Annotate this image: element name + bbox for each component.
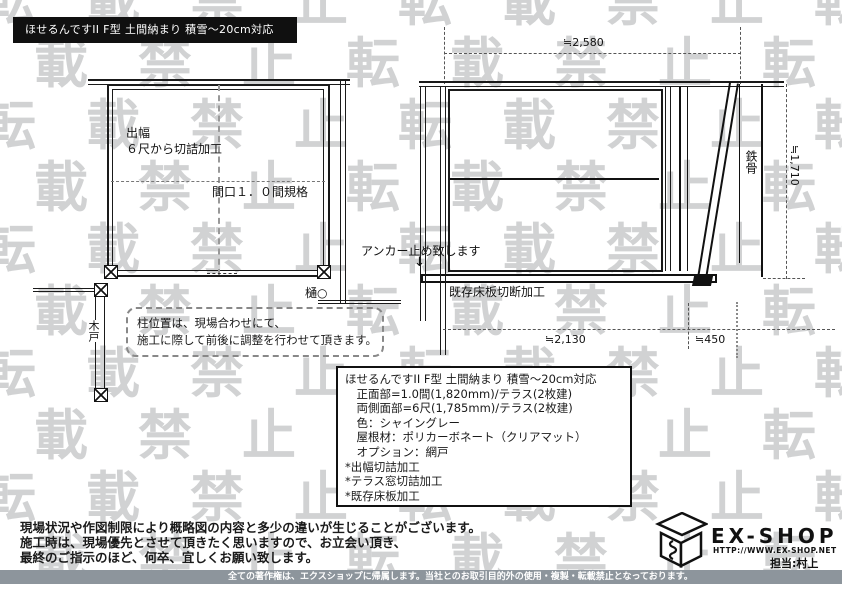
plan-center-dashed-vertical bbox=[218, 85, 220, 275]
dim-top-ext-right bbox=[740, 27, 741, 84]
elev-wall-inner bbox=[440, 86, 446, 355]
plan-bottom-center-tick bbox=[207, 273, 237, 274]
depth-label-line1: 出幅 bbox=[126, 127, 150, 140]
exshop-box-icon bbox=[654, 512, 708, 572]
plan-right-column-lines bbox=[340, 79, 346, 303]
floor-cut-label: 既存床板切断加工 bbox=[449, 286, 545, 299]
steel-brace-foot bbox=[692, 276, 713, 286]
plan-corner-anchor-right bbox=[317, 265, 331, 279]
terrace-panel-divider bbox=[450, 178, 659, 180]
spec-line: *出幅切詰加工 bbox=[345, 460, 623, 475]
steel-vertical-thin bbox=[739, 84, 740, 263]
pillar-note-line2: 施工に際して前後に調整を行わせて頂きます。 bbox=[137, 332, 373, 349]
dim-right-line bbox=[786, 84, 787, 279]
exshop-logo: EX-SHOP HTTP://WWW.EX-SHOP.NET 担当:村上 bbox=[652, 512, 842, 570]
dim-bottom-dotted bbox=[736, 302, 738, 358]
spec-line: *既存床板加工 bbox=[345, 489, 623, 504]
plan-corner-anchor-left bbox=[104, 265, 118, 279]
exshop-contact: 担当:村上 bbox=[770, 555, 818, 571]
gate-label: 木戸 bbox=[87, 320, 100, 342]
dim-top-line bbox=[444, 53, 741, 54]
dim-top-label: ≒2,580 bbox=[563, 36, 604, 49]
dim-bottom-line bbox=[443, 329, 835, 330]
drawing-sheet: 転載禁止転載禁止転載禁止転載禁止転載禁止転載禁止転載禁止転載禁止転載禁止転載禁止… bbox=[0, 0, 842, 595]
depth-label-line2: ６尺から切詰加工 bbox=[126, 143, 222, 156]
spec-line: 両側面部=6尺(1,785mm)/テラス(2枚建) bbox=[345, 401, 623, 416]
gate-anchor-top bbox=[94, 283, 108, 297]
dim-bottom-main-label: ≒2,130 bbox=[545, 333, 586, 346]
dim-bottom-sep bbox=[688, 303, 689, 349]
site-note-line: 最終のご指示のほど、何卒、宜しくお願い致します。 bbox=[20, 550, 481, 565]
copyright-bar: 全ての著作権は、エクスショップに帰属します。当社とのお取引目的外の使用・複製・転… bbox=[0, 570, 842, 584]
plan-center-dashed-horizontal bbox=[111, 181, 325, 182]
steel-vertical-thick bbox=[761, 84, 763, 277]
dim-right-tick-bottom bbox=[763, 278, 805, 279]
page-title: ほせるんですII F型 土間納まり 積雪～20cm対応 bbox=[13, 17, 297, 43]
spec-line: オプション：網戸 bbox=[345, 445, 623, 460]
dim-right-label: ≒1,710 bbox=[788, 145, 801, 186]
elev-post-line2 bbox=[679, 87, 688, 271]
spec-line: ほせるんですII F型 土間納まり 積雪～20cm対応 bbox=[345, 372, 623, 387]
copyright-text: 全ての著作権は、エクスショップに帰属します。当社とのお取引目的外の使用・複製・転… bbox=[228, 572, 693, 582]
site-note-line: 施工時は、現場優先とさせて頂きたく思いますので、お立会い頂き、 bbox=[20, 535, 481, 550]
elev-post-pair1 bbox=[665, 87, 671, 271]
spec-line: 屋根材：ポリカーボネート（クリアマット） bbox=[345, 430, 623, 445]
gutter-label: 樋○ bbox=[305, 287, 327, 300]
spec-box: ほせるんですII F型 土間納まり 積雪～20cm対応 正面部=1.0間(1,8… bbox=[336, 366, 632, 507]
site-notes: 現場状況や作図制限により概略図の内容と多少の違いが生じることがございます。 施工… bbox=[20, 520, 481, 565]
anchor-arrow-icon: ↓ bbox=[414, 256, 425, 269]
exshop-logo-name: EX-SHOP bbox=[711, 524, 838, 548]
wall-line-left bbox=[33, 288, 95, 292]
gate-anchor-bottom bbox=[94, 388, 108, 402]
dim-bottom-sub-label: ≒450 bbox=[695, 333, 725, 346]
site-note-line: 現場状況や作図制限により概略図の内容と多少の違いが生じることがございます。 bbox=[20, 520, 481, 535]
elev-wall-outer bbox=[420, 86, 426, 321]
pillar-note-line1: 柱位置は、現場合わせにて、 bbox=[137, 315, 373, 332]
spec-line: *テラス窓切詰加工 bbox=[345, 474, 623, 489]
spec-line: 正面部=1.0間(1,820mm)/テラス(2枚建) bbox=[345, 387, 623, 402]
spec-line: 色：シャイングレー bbox=[345, 416, 623, 431]
dim-top-ext-left bbox=[444, 27, 445, 84]
existing-floor-bar bbox=[421, 274, 717, 283]
width-spec-label: 間口１．０間規格 bbox=[212, 186, 308, 199]
pillar-note-box: 柱位置は、現場合わせにて、 施工に際して前後に調整を行わせて頂きます。 bbox=[126, 307, 384, 357]
exshop-logo-url: HTTP://WWW.EX-SHOP.NET bbox=[713, 546, 837, 555]
gutter-line bbox=[318, 300, 401, 304]
steel-label: 鉄骨 bbox=[744, 150, 757, 174]
